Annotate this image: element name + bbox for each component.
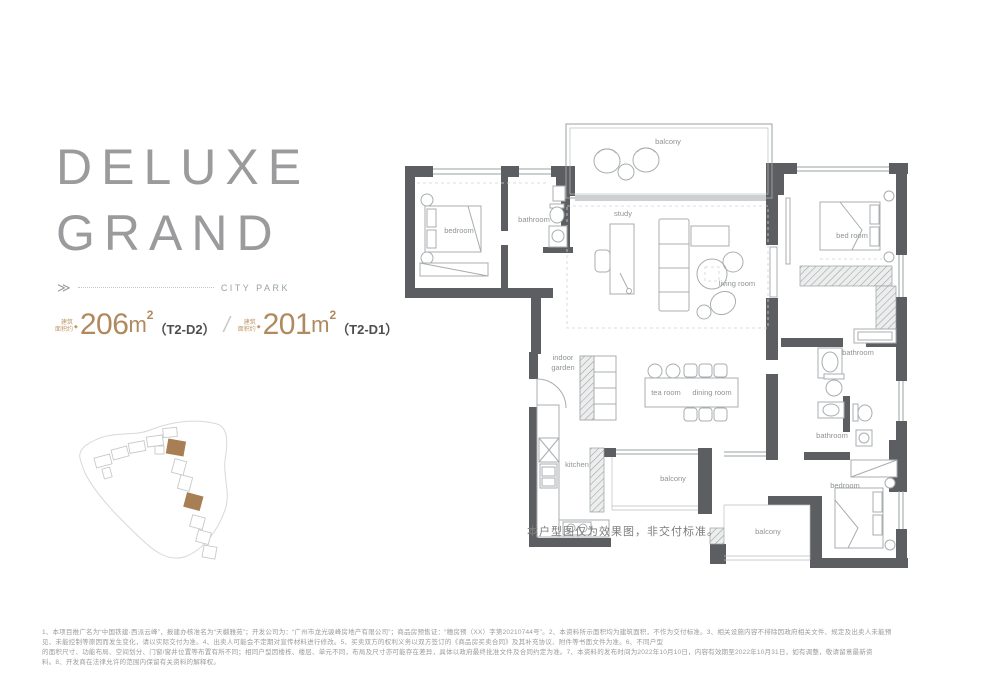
site-highlighted-buildings [166, 439, 204, 512]
room-label: bathroom [816, 431, 848, 440]
dashed-zones [417, 183, 882, 328]
diamond-icon: ◆ [74, 324, 78, 330]
bathroom-topleft-icons [549, 186, 567, 247]
room-label: bedroom [444, 226, 474, 235]
bed-topright-icon [786, 191, 894, 264]
bed-topleft-icon [420, 194, 488, 276]
area-prefix-label: 建筑 面积约 [238, 320, 256, 334]
room-label: indoor [553, 353, 574, 362]
room-labels: balcony bedroom bathroom study living ro… [444, 137, 874, 536]
balcony-top-outline [566, 124, 772, 200]
room-label: kitchen [565, 460, 589, 469]
plan-caption: 本户型图仅为效果图，非交付标准。 [527, 523, 719, 539]
brochure-page: DELUXE GRAND ≫ CITY PARK 建筑 面积约 ◆ 206 m … [0, 0, 1000, 694]
room-label: balcony [755, 527, 781, 536]
room-label: balcony [655, 137, 681, 146]
bed-bottomright-icon [835, 460, 897, 550]
room-label: tea room [651, 388, 681, 397]
room-label: bathroom [518, 215, 550, 224]
unit-type-label: （T2-D1） [336, 319, 398, 338]
disclaimer-line: 料。8、开发商在法律允许的范围内保留有关资料的解释权。 [42, 658, 960, 668]
area-prefix-label: 建筑 面积约 [55, 320, 73, 334]
room-label: living room [719, 279, 755, 288]
disclaimer-line: 见、未能控制等原因而发生变化，请以实际交付为准。4、出卖人可能会不定期对宣传材料… [42, 638, 960, 648]
dotted-divider [78, 287, 214, 288]
sofa-icon [659, 219, 743, 319]
diamond-icon: ◆ [257, 324, 261, 330]
area-value: 201 [263, 310, 312, 340]
title-line-1: DELUXE [56, 134, 310, 200]
page-title: DELUXE GRAND [56, 134, 310, 266]
room-label: bedroom [830, 481, 860, 490]
area-specs: 建筑 面积约 ◆ 206 m 2 （T2-D2） / 建筑 面积约 ◆ 201 … [55, 310, 398, 340]
area-sup: 2 [329, 308, 336, 322]
disclaimer-line: 的面积尺寸、功能布局、空间划分、门窗/窗井位置等布置有所不同；相同户型因楼栋、楼… [42, 648, 960, 658]
title-line-2: GRAND [56, 200, 310, 266]
area-unit: m [311, 310, 329, 340]
balcony-mid-outline [612, 457, 698, 510]
unit-type-label: （T2-D2） [153, 319, 215, 338]
study-desk-icon [595, 224, 634, 294]
hero-divider: ≫ CITY PARK [57, 281, 290, 294]
room-label: bed room [836, 231, 868, 240]
legal-disclaimer: 1、本项目推广名为“中国铁建·西派云峰”，报建办核准名为“天樾雅苑”；开发公司为… [42, 628, 960, 668]
disclaimer-line: 1、本项目推广名为“中国铁建·西派云峰”，报建办核准名为“天樾雅苑”；开发公司为… [42, 628, 960, 638]
room-label: balcony [660, 474, 686, 483]
room-label: study [614, 209, 632, 218]
floor-plan: balcony bedroom bathroom study living ro… [400, 112, 948, 574]
spec-separator: / [224, 312, 230, 338]
sliding-door-icon [770, 247, 777, 297]
area-value: 206 [80, 310, 129, 340]
room-label: dining room [692, 388, 731, 397]
balcony-chairs-icon [594, 148, 659, 180]
site-plan-sketch [55, 398, 295, 593]
double-chevron-icon: ≫ [57, 281, 71, 294]
room-label: bathroom [842, 348, 874, 357]
area-spec-2: 建筑 面积约 ◆ 201 m 2 （T2-D1） [238, 310, 399, 340]
room-label: garden [551, 363, 574, 372]
area-sup: 2 [147, 308, 154, 322]
area-unit: m [128, 310, 146, 340]
area-spec-1: 建筑 面积约 ◆ 206 m 2 （T2-D2） [55, 310, 216, 340]
city-park-label: CITY PARK [221, 283, 290, 293]
site-buildings [94, 427, 217, 559]
